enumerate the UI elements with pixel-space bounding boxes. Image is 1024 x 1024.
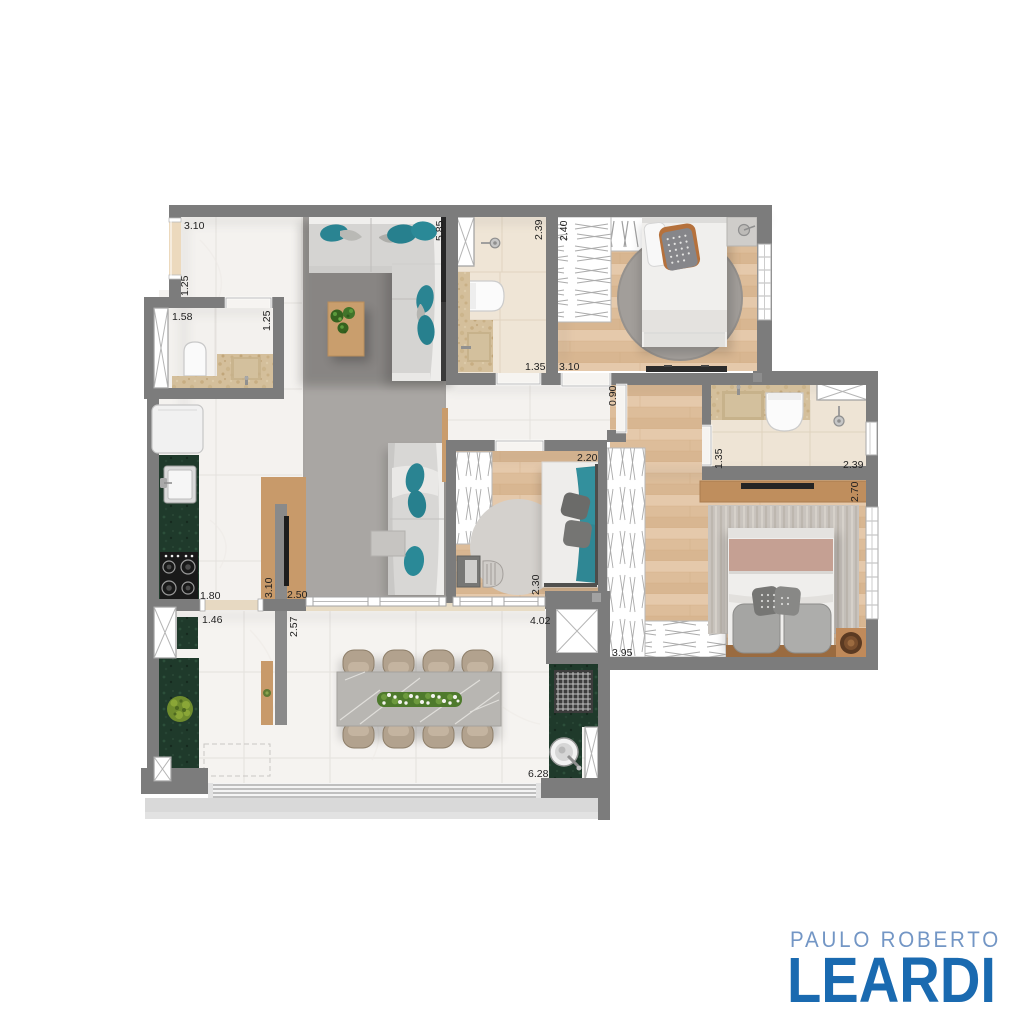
svg-text:0.90: 0.90 <box>607 385 619 406</box>
svg-text:6.28: 6.28 <box>528 768 549 780</box>
svg-text:2.50: 2.50 <box>287 589 308 601</box>
svg-text:2.20: 2.20 <box>577 452 598 464</box>
svg-text:3.10: 3.10 <box>184 220 205 232</box>
svg-text:1.58: 1.58 <box>172 311 193 323</box>
svg-text:2.40: 2.40 <box>558 220 570 241</box>
svg-text:1.80: 1.80 <box>200 590 221 602</box>
svg-text:1.35: 1.35 <box>525 361 546 373</box>
svg-text:1.25: 1.25 <box>261 310 273 331</box>
svg-text:LEARDI: LEARDI <box>787 944 996 1016</box>
svg-text:3.10: 3.10 <box>263 577 275 598</box>
svg-text:2.39: 2.39 <box>843 459 864 471</box>
svg-text:4.02: 4.02 <box>530 615 551 627</box>
svg-text:2.30: 2.30 <box>530 574 542 595</box>
svg-text:3.95: 3.95 <box>612 647 633 659</box>
svg-text:1.35: 1.35 <box>713 448 725 469</box>
svg-text:1.25: 1.25 <box>179 275 191 296</box>
svg-text:5.85: 5.85 <box>434 220 446 241</box>
svg-text:2.57: 2.57 <box>288 616 300 637</box>
svg-text:3.10: 3.10 <box>559 361 580 373</box>
svg-text:2.39: 2.39 <box>533 219 545 240</box>
svg-text:1.46: 1.46 <box>202 614 223 626</box>
svg-text:2.70: 2.70 <box>849 481 861 502</box>
